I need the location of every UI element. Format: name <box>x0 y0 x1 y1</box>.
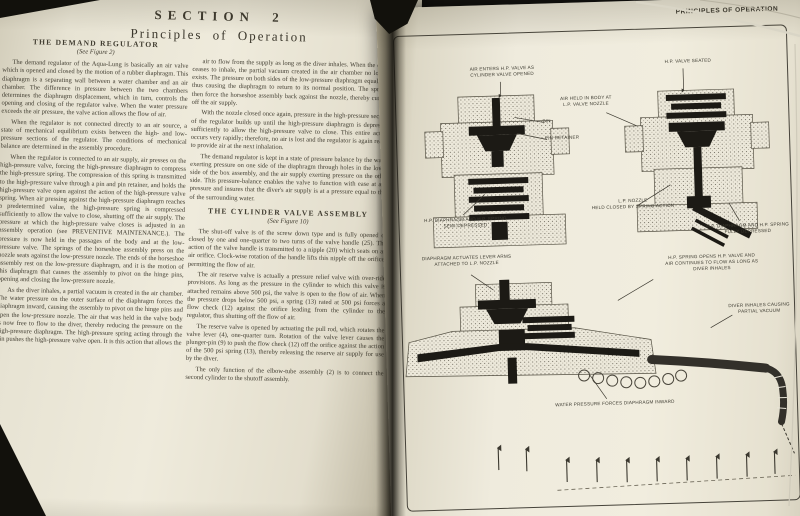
figure-frame: AIR ENTERS H.P. VALVE AS CYLINDER VALVE … <box>393 24 800 511</box>
paragraph: With the nozzle closed once again, press… <box>191 109 390 154</box>
paragraph: The demand regulator of the Aqua-Lung is… <box>1 59 188 120</box>
label-air-held: AIR HELD IN BODY AT L.P. VALVE NOZZLE <box>544 94 628 109</box>
label-diver-inhales: DIVER INHALES CAUSING PARTIAL VACUUM <box>726 301 792 315</box>
left-page: SECTION 2 Principles of Operation THE DE… <box>0 0 422 516</box>
section-number: SECTION 2 <box>109 6 329 27</box>
label-fully-depressed: H.P. DIAPHRAGM AND H.P. SPRING FULLY DEP… <box>706 221 790 236</box>
right-page: PRINCIPLES OF OPERATION <box>376 0 800 516</box>
paragraph: As the diver inhales, a partial vacuum i… <box>0 287 183 348</box>
label-pin: PIN <box>542 118 572 125</box>
page-header: PRINCIPLES OF OPERATION <box>638 6 778 17</box>
book-photo: SECTION 2 Principles of Operation THE DE… <box>0 0 800 516</box>
paragraph: The shut-off valve is of the screw down … <box>188 228 387 273</box>
paragraph: air to flow from the supply as long as t… <box>192 58 391 111</box>
left-column: THE DEMAND REGULATOR (See Figure 2) The … <box>0 38 189 351</box>
label-hp-spring-opens: H.P. SPRING OPENS H.P. VALVE AND AIR CON… <box>649 252 775 274</box>
paragraph: When the regulator is not connected dire… <box>0 118 187 155</box>
paragraph: The demand regulator is kept in a state … <box>189 153 388 206</box>
paragraph: The reserve valve is opened by actuating… <box>186 323 385 368</box>
middle-column: air to flow from the supply as long as t… <box>185 58 390 389</box>
paragraph: The air reserve valve is actually a pres… <box>187 271 386 324</box>
paragraph: The only function of the elbow-tube asse… <box>185 366 383 387</box>
paragraph: When the regulator is connected to an ai… <box>0 154 186 289</box>
